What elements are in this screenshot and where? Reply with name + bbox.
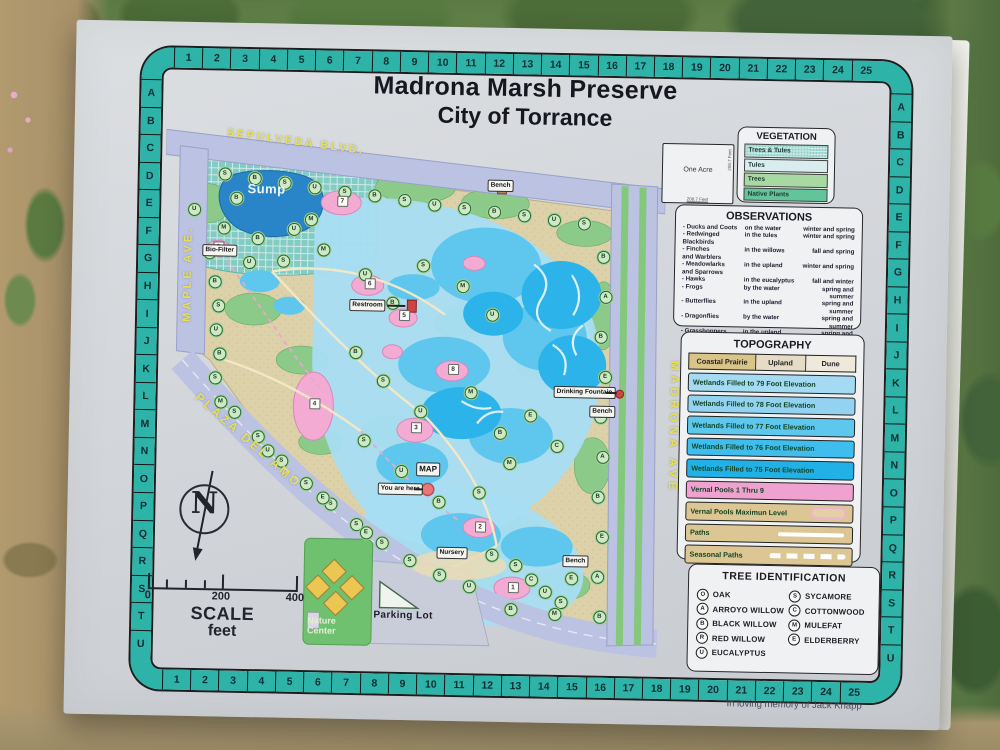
tree-marker-E: E bbox=[598, 370, 611, 383]
grid-number-cell: 10 bbox=[428, 52, 457, 73]
tree-id-item: AARROYO WILLOW bbox=[696, 603, 788, 617]
tree-id-title: TREE IDENTIFICATION bbox=[697, 570, 871, 585]
park-map-sign: 1234567891011121314151617181920212223242… bbox=[63, 20, 952, 731]
observation-location: by the water bbox=[743, 284, 797, 300]
sign-title: Madrona Marsh Preserve City of Torrance bbox=[225, 69, 826, 137]
grid-letter-cell: B bbox=[141, 106, 162, 134]
topography-row-label: Vernal Pools 1 Thru 9 bbox=[691, 485, 764, 495]
tree-marker-B: B bbox=[213, 347, 226, 360]
scale-400: 400 bbox=[286, 592, 305, 604]
drinking-fountain-arrow bbox=[606, 392, 617, 394]
tree-marker-C: C bbox=[524, 573, 537, 586]
topography-legend: TOPOGRAPHY Coastal PrairieUplandDune Wet… bbox=[676, 331, 864, 562]
topography-rows: Wetlands Filled to 79 Foot ElevationWetl… bbox=[684, 372, 856, 566]
grid-number-cell: 20 bbox=[698, 680, 727, 701]
tree-symbol: R bbox=[696, 632, 708, 644]
grid-number-cell: 15 bbox=[569, 55, 598, 76]
map-box-label: MAP bbox=[416, 462, 440, 476]
grid-number-cell: 5 bbox=[287, 50, 316, 71]
tree-id-item: UEUCALYPTUS bbox=[696, 647, 788, 661]
bench-label: Bench bbox=[488, 180, 514, 192]
grid-letter-cell: Q bbox=[882, 534, 903, 562]
tree-marker-B: B bbox=[251, 232, 264, 245]
observation-location: in the willows bbox=[744, 247, 798, 263]
grid-letter-cell: F bbox=[138, 217, 159, 245]
grid-letter-cell: P bbox=[133, 492, 154, 520]
grid-number-cell: 14 bbox=[541, 55, 570, 76]
tree-name: SYCAMORE bbox=[805, 592, 852, 602]
topography-row-label: Paths bbox=[690, 528, 710, 537]
vernal-pool-number: 2 bbox=[474, 521, 485, 532]
grid-number-cell: 25 bbox=[851, 61, 880, 82]
grid-letter-cell: D bbox=[140, 161, 161, 189]
tree-marker-B: B bbox=[591, 490, 604, 503]
tree-name: COTTONWOOD bbox=[805, 606, 865, 616]
grid-number-cell: 8 bbox=[360, 673, 389, 694]
grid-letter-cell: N bbox=[884, 451, 905, 479]
tree-marker-B: B bbox=[597, 250, 610, 263]
grid-letter-cell: M bbox=[885, 424, 906, 452]
grid-number-cell: 8 bbox=[371, 51, 400, 72]
observations-title: OBSERVATIONS bbox=[683, 209, 855, 224]
grid-number-cell: 15 bbox=[557, 677, 586, 698]
grid-letter-cell: O bbox=[884, 479, 905, 507]
observation-species: - Meadowlarks and Sparrows bbox=[682, 261, 744, 277]
grid-number-cell: 14 bbox=[529, 676, 558, 697]
grid-letter-cell: C bbox=[140, 134, 161, 162]
observations-legend: OBSERVATIONS - Ducks and Cootson the wat… bbox=[673, 204, 863, 330]
tree-marker-B: B bbox=[432, 495, 445, 508]
vegetation-row: Trees & Tules bbox=[744, 143, 828, 158]
observations-rows: - Ducks and Cootson the waterwinter and … bbox=[681, 223, 855, 345]
tree-marker-U: U bbox=[209, 323, 222, 336]
tree-id-item: OOAK bbox=[697, 588, 789, 602]
drinking-fountain-icon bbox=[616, 390, 624, 398]
tree-marker-S: S bbox=[485, 548, 498, 561]
scale-tick bbox=[204, 580, 206, 588]
tree-marker-C: C bbox=[550, 439, 563, 452]
grid-number-cell: 6 bbox=[315, 50, 344, 71]
tree-marker-B: B bbox=[488, 205, 501, 218]
topography-symbol-oval bbox=[810, 507, 846, 520]
tree-marker-E: E bbox=[564, 572, 577, 585]
tree-marker-S: S bbox=[398, 193, 411, 206]
grid-number-cell: 12 bbox=[472, 675, 501, 696]
topography-row: Vernal Pools Maximun Level bbox=[685, 501, 853, 523]
tree-marker-S: S bbox=[577, 217, 590, 230]
topography-row-label: Wetlands Filled to 78 Foot Elevation bbox=[692, 399, 815, 410]
tree-marker-B: B bbox=[504, 602, 517, 615]
tree-name: ELDERBERRY bbox=[804, 636, 860, 646]
tree-symbol: C bbox=[789, 605, 801, 617]
one-acre-side-dim: 208.7 Feet bbox=[727, 149, 732, 171]
tree-marker-S: S bbox=[403, 554, 416, 567]
tree-id-item: SSYCAMORE bbox=[789, 590, 871, 604]
tree-name: EUCALYPTUS bbox=[712, 648, 766, 658]
tree-marker-U: U bbox=[308, 181, 321, 194]
tree-marker-M: M bbox=[217, 221, 230, 234]
topography-row-label: Wetlands Filled to 79 Foot Elevation bbox=[693, 377, 816, 388]
bio-filter-label: Bio-Filter bbox=[202, 244, 237, 256]
tree-marker-U: U bbox=[287, 222, 300, 235]
grid-number-cell: 22 bbox=[767, 59, 796, 80]
observation-season: spring and summer bbox=[797, 285, 854, 301]
bench-label: Bench bbox=[589, 406, 615, 418]
grid-letter-cell: M bbox=[135, 409, 156, 437]
grid-letter-cell: L bbox=[135, 382, 156, 410]
one-acre-label: One Acre bbox=[663, 166, 733, 174]
observation-season: winter and spring bbox=[798, 233, 855, 249]
tree-marker-U: U bbox=[428, 198, 441, 211]
scale-tick bbox=[185, 580, 187, 588]
tree-marker-B: B bbox=[594, 330, 607, 343]
tree-symbol: O bbox=[697, 588, 709, 600]
tree-id-left-column: OOAKAARROYO WILLOWBBLACK WILLOWRRED WILL… bbox=[696, 586, 790, 663]
grid-letter-cell: I bbox=[887, 314, 908, 342]
nursery-label: Nursery bbox=[436, 547, 467, 559]
grid-number-cell: 11 bbox=[456, 53, 485, 74]
tree-id-right-column: SSYCAMORECCOTTONWOODMMULEFATEELDERBERRY bbox=[788, 587, 871, 664]
grid-number-cell: 7 bbox=[331, 673, 360, 694]
grid-number-cell: 13 bbox=[501, 676, 530, 697]
tree-id-item: CCOTTONWOOD bbox=[789, 605, 871, 619]
grid-letter-cell: L bbox=[885, 396, 906, 424]
grid-letter-cell: S bbox=[881, 589, 902, 617]
grid-letter-cell: G bbox=[888, 258, 909, 286]
restroom-label: Restroom bbox=[349, 299, 386, 311]
topography-symbol-line bbox=[778, 532, 844, 537]
tree-symbol: S bbox=[789, 590, 801, 602]
topography-title: TOPOGRAPHY bbox=[689, 337, 857, 352]
tree-id-item: EELDERBERRY bbox=[788, 634, 870, 648]
tree-marker-U: U bbox=[462, 580, 475, 593]
observation-location: by the water bbox=[743, 314, 797, 330]
you-are-here-dot bbox=[422, 483, 434, 495]
grid-letter-cell: I bbox=[137, 299, 158, 327]
topography-row: Wetlands Filled to 79 Foot Elevation bbox=[688, 372, 856, 394]
topography-row: Seasonal Paths bbox=[684, 544, 852, 566]
tree-marker-M: M bbox=[464, 386, 477, 399]
vernal-pool-number: 1 bbox=[507, 582, 518, 593]
grid-number-cell: 11 bbox=[444, 675, 473, 696]
tree-marker-B: B bbox=[368, 189, 381, 202]
tree-id-item: MMULEFAT bbox=[788, 619, 870, 633]
tree-marker-S: S bbox=[277, 254, 290, 267]
vegetation-rows: Trees & TulesTulesTreesNative Plants bbox=[743, 143, 828, 202]
grid-letter-cell: A bbox=[141, 79, 162, 107]
tree-marker-S: S bbox=[416, 259, 429, 272]
tree-id-item: RRED WILLOW bbox=[696, 632, 788, 646]
tree-name: RED WILLOW bbox=[712, 634, 765, 644]
bench-label: Bench bbox=[562, 555, 588, 567]
tree-marker-S: S bbox=[472, 486, 485, 499]
tree-name: MULEFAT bbox=[804, 621, 842, 631]
tree-name: ARROYO WILLOW bbox=[712, 605, 784, 615]
tree-id-columns: OOAKAARROYO WILLOWBBLACK WILLOWRRED WILL… bbox=[696, 586, 871, 665]
topography-row: Wetlands Filled to 77 Foot Elevation bbox=[687, 415, 855, 437]
topography-row-label: Wetlands Filled to 76 Foot Elevation bbox=[692, 442, 815, 453]
grid-number-cell: 1 bbox=[162, 669, 191, 690]
tree-identification-legend: TREE IDENTIFICATION OOAKAARROYO WILLOWBB… bbox=[686, 563, 880, 675]
vegetation-row: Native Plants bbox=[743, 187, 827, 202]
vernal-pool-number: 6 bbox=[364, 278, 375, 289]
grid-number-cell: 21 bbox=[738, 58, 767, 79]
grid-letter-cell: T bbox=[881, 616, 902, 644]
tree-marker-U: U bbox=[414, 405, 427, 418]
tree-symbol: A bbox=[696, 603, 708, 615]
topography-row: Paths bbox=[685, 523, 853, 545]
tree-marker-S: S bbox=[212, 299, 225, 312]
topography-row: Wetlands Filled to 76 Foot Elevation bbox=[686, 437, 854, 459]
grid-letter-cell: R bbox=[132, 547, 153, 575]
grid-number-cell: 20 bbox=[710, 58, 739, 79]
tree-symbol: E bbox=[788, 634, 800, 646]
sump-label: Sump bbox=[247, 181, 285, 197]
vegetation-row: Tules bbox=[744, 158, 828, 173]
scale-tick bbox=[166, 579, 168, 587]
topography-symbol-dash bbox=[770, 553, 846, 559]
grid-letter-cell: N bbox=[134, 437, 155, 465]
tree-marker-A: A bbox=[596, 450, 609, 463]
grid-letter-cell: H bbox=[137, 272, 158, 300]
tree-marker-U: U bbox=[538, 585, 551, 598]
vernal-pool-number: 3 bbox=[410, 422, 421, 433]
grid-number-cell: 12 bbox=[484, 53, 513, 74]
tree-marker-B: B bbox=[349, 345, 362, 358]
restroom-arrow bbox=[387, 305, 405, 307]
grid-number-cell: 3 bbox=[218, 671, 247, 692]
grid-letter-cell: D bbox=[889, 176, 910, 204]
grid-number-cell: 3 bbox=[230, 49, 259, 70]
grid-number-cell: 16 bbox=[585, 678, 614, 699]
tree-symbol: M bbox=[788, 619, 800, 631]
grid-number-cell: 19 bbox=[670, 679, 699, 700]
observation-species: - Dragonflies bbox=[681, 313, 743, 329]
scale-bar: 0 200 400 SCALE feet bbox=[147, 573, 318, 642]
observation-species: - Finches and Warblers bbox=[682, 246, 744, 262]
tree-name: OAK bbox=[713, 590, 731, 599]
tree-name: BLACK WILLOW bbox=[712, 619, 776, 629]
grid-letter-cell: Q bbox=[133, 519, 154, 547]
tree-marker-S: S bbox=[554, 595, 567, 608]
tree-marker-U: U bbox=[547, 213, 560, 226]
observation-season: spring and summer bbox=[796, 315, 853, 331]
topography-header: Coastal PrairieUplandDune bbox=[688, 352, 856, 372]
grid-number-cell: 2 bbox=[190, 670, 219, 691]
grid-number-cell: 24 bbox=[823, 60, 852, 81]
observation-location: in the upland bbox=[744, 262, 798, 278]
grid-number-cell: 18 bbox=[654, 57, 683, 78]
scale-tick bbox=[222, 575, 224, 589]
grid-letter-cell: K bbox=[136, 354, 157, 382]
scale-unit: feet bbox=[147, 621, 297, 642]
tree-marker-B: B bbox=[386, 296, 399, 309]
one-acre-bottom-dim: 208.7 Feet bbox=[662, 196, 732, 202]
tree-marker-E: E bbox=[595, 530, 608, 543]
grid-number-cell: 17 bbox=[614, 678, 643, 699]
topography-header-cell: Coastal Prairie bbox=[688, 352, 756, 370]
grid-number-cell: 5 bbox=[275, 672, 304, 693]
compass-north-letter: N bbox=[175, 486, 234, 522]
tree-marker-U: U bbox=[242, 255, 255, 268]
grid-letter-cell: H bbox=[887, 286, 908, 314]
tree-marker-M: M bbox=[304, 213, 317, 226]
grid-letter-cell: O bbox=[134, 464, 155, 492]
topography-row: Wetlands Filled to 75 Foot Elevation bbox=[686, 458, 854, 480]
observation-species: - Frogs bbox=[682, 283, 744, 299]
topography-row-label: Seasonal Paths bbox=[690, 549, 743, 559]
tree-marker-E: E bbox=[316, 491, 329, 504]
vernal-pool-number: 7 bbox=[337, 195, 348, 206]
observation-location: in the tules bbox=[744, 232, 798, 248]
grid-number-cell: 17 bbox=[626, 56, 655, 77]
tree-marker-U: U bbox=[486, 308, 499, 321]
tree-marker-S: S bbox=[375, 536, 388, 549]
tree-marker-M: M bbox=[456, 279, 469, 292]
grid-letter-cell: C bbox=[890, 148, 911, 176]
grid-letter-cell: F bbox=[888, 231, 909, 259]
tree-marker-S: S bbox=[208, 371, 221, 384]
grid-number-cell: 16 bbox=[597, 56, 626, 77]
observation-species: - Redwinged Blackbirds bbox=[683, 231, 745, 247]
scale-0: 0 bbox=[145, 589, 151, 601]
topography-row-label: Vernal Pools Maximun Level bbox=[690, 506, 787, 517]
tree-marker-S: S bbox=[218, 167, 231, 180]
grid-letter-cell: R bbox=[882, 561, 903, 589]
grid-number-cell: 18 bbox=[642, 679, 671, 700]
tree-symbol: B bbox=[696, 617, 708, 629]
grid-number-cell: 1 bbox=[174, 48, 203, 69]
grid-letter-cell: G bbox=[138, 244, 159, 272]
vernal-pool-number: 4 bbox=[309, 398, 320, 409]
tree-marker-M: M bbox=[548, 607, 561, 620]
tree-marker-S: S bbox=[517, 209, 530, 222]
tree-marker-B: B bbox=[593, 610, 606, 623]
tree-marker-S: S bbox=[509, 559, 522, 572]
tree-marker-S: S bbox=[376, 374, 389, 387]
tree-marker-S: S bbox=[458, 202, 471, 215]
topography-row-label: Wetlands Filled to 77 Foot Elevation bbox=[692, 420, 815, 431]
grid-letter-cell: J bbox=[136, 327, 157, 355]
tree-marker-M: M bbox=[317, 243, 330, 256]
topography-header-cell: Dune bbox=[806, 355, 857, 373]
grid-letter-cell: K bbox=[886, 369, 907, 397]
observation-season: spring and summer bbox=[796, 300, 853, 316]
grid-number-cell: 9 bbox=[388, 674, 417, 695]
grid-number-cell: 23 bbox=[795, 59, 824, 80]
north-compass: N bbox=[175, 478, 234, 537]
vegetation-title: VEGETATION bbox=[745, 130, 829, 143]
grid-letter-cell: B bbox=[890, 121, 911, 149]
grid-number-cell: 19 bbox=[682, 57, 711, 78]
tree-marker-B: B bbox=[493, 426, 506, 439]
one-acre-box: One Acre 208.7 Feet 208.7 Feet bbox=[661, 143, 734, 204]
topography-row-label: Wetlands Filled to 75 Foot Elevation bbox=[691, 463, 814, 474]
grid-number-cell: 4 bbox=[259, 49, 288, 70]
tree-marker-S: S bbox=[433, 568, 446, 581]
tree-marker-U: U bbox=[395, 464, 408, 477]
grid-number-cell: 2 bbox=[202, 48, 231, 69]
tree-marker-E: E bbox=[359, 526, 372, 539]
tree-id-item: BBLACK WILLOW bbox=[696, 617, 788, 631]
tree-marker-A: A bbox=[591, 570, 604, 583]
scale-200: 200 bbox=[212, 590, 231, 602]
vernal-pool-number: 5 bbox=[399, 309, 410, 320]
grid-letter-cell: E bbox=[889, 203, 910, 231]
grid-number-cell: 13 bbox=[513, 54, 542, 75]
tree-marker-S: S bbox=[357, 434, 370, 447]
grid-number-cell: 4 bbox=[247, 671, 276, 692]
tree-symbol: U bbox=[696, 647, 708, 659]
grid-number-cell: 6 bbox=[303, 672, 332, 693]
observation-location: in the upland bbox=[743, 299, 797, 315]
tree-marker-B: B bbox=[230, 191, 243, 204]
scale-tick bbox=[296, 576, 298, 590]
grid-letter-cell: J bbox=[886, 341, 907, 369]
topography-row: Vernal Pools 1 Thru 9 bbox=[686, 480, 854, 502]
vegetation-legend: VEGETATION Trees & TulesTulesTreesNative… bbox=[736, 126, 835, 204]
scale-tick bbox=[148, 573, 150, 587]
topography-header-cell: Upland bbox=[756, 354, 807, 372]
observation-season: fall and spring bbox=[797, 248, 854, 264]
grid-letter-cell: P bbox=[883, 506, 904, 534]
parking-lot-label: Parking Lot bbox=[373, 609, 433, 621]
tree-marker-M: M bbox=[503, 456, 516, 469]
you-are-here-arrow bbox=[414, 488, 423, 490]
grid-letter-cell: U bbox=[880, 644, 901, 672]
memorial-text: In loving memory of Jack Knapp bbox=[726, 698, 861, 712]
vegetation-row: Trees bbox=[744, 172, 828, 187]
grid-letter-cell: E bbox=[139, 189, 160, 217]
topography-row: Wetlands Filled to 78 Foot Elevation bbox=[687, 394, 855, 416]
observation-season: winter and spring bbox=[797, 263, 854, 279]
observation-species: - Butterflies bbox=[681, 298, 743, 314]
grid-number-cell: 9 bbox=[400, 52, 429, 73]
tree-marker-B: B bbox=[208, 275, 221, 288]
grid-number-cell: 7 bbox=[343, 51, 372, 72]
tree-marker-E: E bbox=[524, 409, 537, 422]
vernal-pool-number: 8 bbox=[448, 363, 459, 374]
grid-letter-cell: A bbox=[891, 93, 912, 121]
tree-marker-A: A bbox=[599, 290, 612, 303]
grid-number-cell: 10 bbox=[416, 674, 445, 695]
